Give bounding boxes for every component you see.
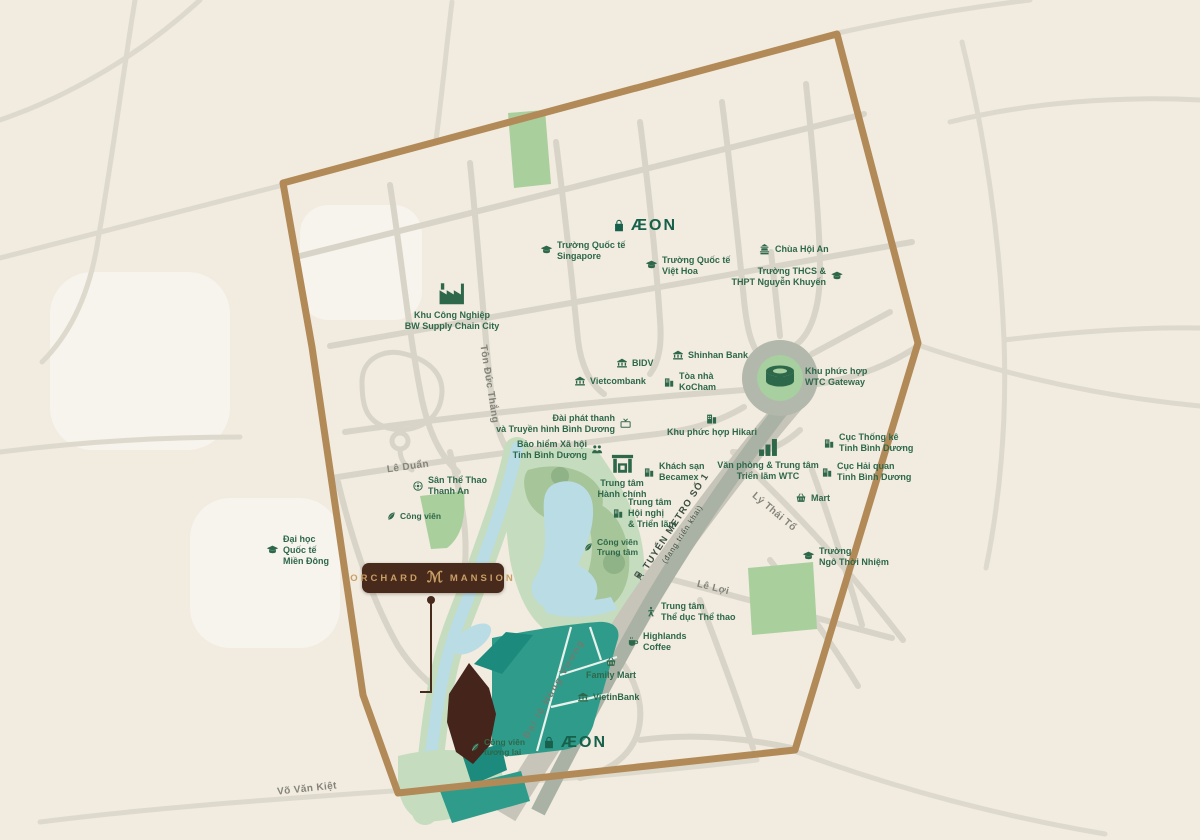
map-canvas: ÆONTrường Quốc tếSingaporeTrường Quốc tế… [0,0,1200,840]
orchard-mansion-badge: ORCHARD ℳ MANSION [362,563,504,593]
map-graphics [0,0,1200,840]
badge-text-left: ORCHARD [350,573,420,584]
badge-text-right: MANSION [450,573,516,584]
stadium-icon [766,366,794,387]
mansion-monogram-icon: ℳ [427,568,443,586]
wtc-gateway-roundabout [742,340,818,416]
